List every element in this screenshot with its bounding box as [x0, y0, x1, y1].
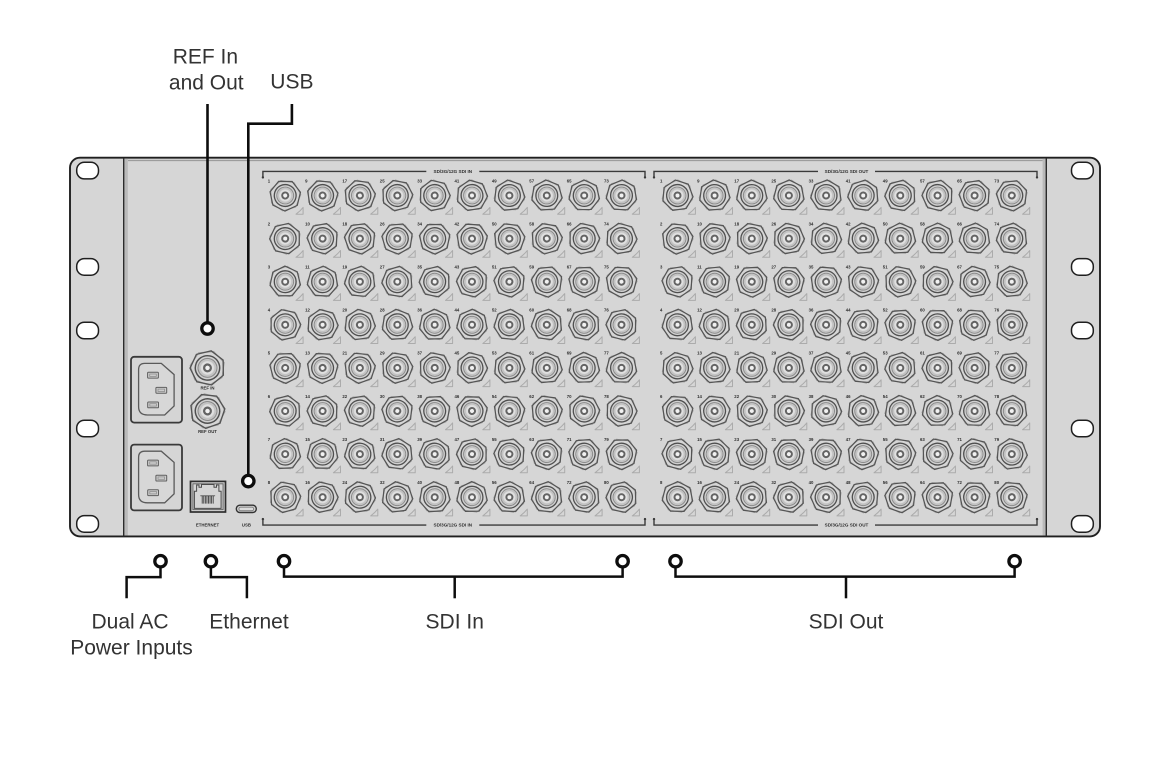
svg-text:50: 50 [883, 221, 888, 226]
svg-text:60: 60 [529, 308, 534, 313]
svg-text:77: 77 [604, 351, 609, 356]
svg-text:23: 23 [734, 437, 739, 442]
svg-text:38: 38 [417, 394, 422, 399]
svg-text:24: 24 [734, 480, 739, 485]
svg-text:15: 15 [697, 437, 702, 442]
svg-text:12: 12 [697, 308, 702, 313]
svg-text:18: 18 [342, 221, 347, 226]
svg-text:26: 26 [380, 221, 385, 226]
svg-text:66: 66 [957, 221, 962, 226]
svg-text:33: 33 [417, 178, 422, 183]
svg-text:28: 28 [771, 308, 776, 313]
svg-text:80: 80 [994, 480, 999, 485]
svg-text:Ethernet: Ethernet [209, 611, 289, 634]
svg-text:54: 54 [883, 394, 888, 399]
svg-text:38: 38 [809, 394, 814, 399]
svg-text:Dual AC: Dual AC [91, 611, 168, 634]
svg-text:54: 54 [492, 394, 497, 399]
svg-text:31: 31 [380, 437, 385, 442]
svg-text:45: 45 [846, 351, 851, 356]
svg-text:70: 70 [567, 394, 572, 399]
svg-text:49: 49 [883, 178, 888, 183]
svg-text:29: 29 [771, 351, 776, 356]
svg-text:12: 12 [305, 308, 310, 313]
svg-text:10: 10 [697, 221, 702, 226]
svg-text:16: 16 [305, 480, 310, 485]
svg-text:26: 26 [771, 221, 776, 226]
svg-text:27: 27 [380, 265, 385, 270]
svg-text:20: 20 [734, 308, 739, 313]
svg-text:76: 76 [994, 308, 999, 313]
svg-text:73: 73 [604, 178, 609, 183]
svg-text:47: 47 [455, 437, 460, 442]
svg-text:73: 73 [994, 178, 999, 183]
svg-text:67: 67 [957, 265, 962, 270]
svg-text:42: 42 [455, 221, 460, 226]
svg-text:20: 20 [342, 308, 347, 313]
svg-text:10: 10 [305, 221, 310, 226]
svg-text:USB: USB [270, 70, 313, 93]
svg-text:21: 21 [342, 351, 347, 356]
svg-text:48: 48 [846, 480, 851, 485]
svg-text:27: 27 [771, 265, 776, 270]
svg-text:30: 30 [380, 394, 385, 399]
svg-text:70: 70 [957, 394, 962, 399]
svg-text:68: 68 [567, 308, 572, 313]
svg-text:SD/3G/12G SDI OUT: SD/3G/12G SDI OUT [825, 169, 869, 174]
svg-text:REF OUT: REF OUT [198, 429, 217, 434]
svg-text:80: 80 [604, 480, 609, 485]
svg-text:32: 32 [771, 480, 776, 485]
svg-text:24: 24 [342, 480, 347, 485]
svg-text:49: 49 [492, 178, 497, 183]
svg-text:43: 43 [846, 265, 851, 270]
svg-text:44: 44 [846, 308, 851, 313]
svg-text:SDI In: SDI In [426, 611, 484, 634]
svg-text:72: 72 [957, 480, 962, 485]
svg-text:61: 61 [529, 351, 534, 356]
svg-text:36: 36 [417, 308, 422, 313]
svg-text:21: 21 [734, 351, 739, 356]
svg-text:51: 51 [883, 265, 888, 270]
svg-text:47: 47 [846, 437, 851, 442]
svg-text:59: 59 [920, 265, 925, 270]
svg-text:and Out: and Out [169, 72, 244, 95]
svg-text:53: 53 [883, 351, 888, 356]
svg-text:22: 22 [734, 394, 739, 399]
svg-text:17: 17 [734, 178, 739, 183]
svg-text:79: 79 [604, 437, 609, 442]
svg-text:68: 68 [957, 308, 962, 313]
svg-text:35: 35 [417, 265, 422, 270]
svg-text:56: 56 [492, 480, 497, 485]
svg-text:35: 35 [809, 265, 814, 270]
svg-text:36: 36 [809, 308, 814, 313]
svg-text:REF IN: REF IN [200, 385, 214, 390]
svg-text:42: 42 [846, 221, 851, 226]
svg-text:71: 71 [957, 437, 962, 442]
svg-text:40: 40 [809, 480, 814, 485]
svg-text:17: 17 [342, 178, 347, 183]
svg-text:15: 15 [305, 437, 310, 442]
svg-text:39: 39 [417, 437, 422, 442]
svg-text:SD/3G/12G SDI OUT: SD/3G/12G SDI OUT [825, 523, 869, 528]
svg-text:71: 71 [567, 437, 572, 442]
svg-text:56: 56 [883, 480, 888, 485]
svg-text:50: 50 [492, 221, 497, 226]
svg-text:64: 64 [920, 480, 925, 485]
svg-text:34: 34 [809, 221, 814, 226]
svg-text:11: 11 [305, 265, 310, 270]
svg-text:76: 76 [604, 308, 609, 313]
svg-text:22: 22 [342, 394, 347, 399]
svg-text:63: 63 [529, 437, 534, 442]
svg-text:61: 61 [920, 351, 925, 356]
svg-text:60: 60 [920, 308, 925, 313]
svg-text:53: 53 [492, 351, 497, 356]
svg-text:55: 55 [492, 437, 497, 442]
svg-text:58: 58 [529, 221, 534, 226]
svg-text:40: 40 [417, 480, 422, 485]
svg-text:78: 78 [994, 394, 999, 399]
svg-text:41: 41 [846, 178, 851, 183]
svg-text:74: 74 [994, 221, 999, 226]
svg-text:14: 14 [305, 394, 310, 399]
svg-text:67: 67 [567, 265, 572, 270]
svg-text:13: 13 [697, 351, 702, 356]
svg-text:18: 18 [734, 221, 739, 226]
svg-text:37: 37 [417, 351, 422, 356]
svg-text:74: 74 [604, 221, 609, 226]
svg-text:16: 16 [697, 480, 702, 485]
svg-text:43: 43 [455, 265, 460, 270]
svg-text:75: 75 [604, 265, 609, 270]
svg-text:48: 48 [455, 480, 460, 485]
svg-text:25: 25 [380, 178, 385, 183]
svg-text:51: 51 [492, 265, 497, 270]
svg-text:75: 75 [994, 265, 999, 270]
svg-text:34: 34 [417, 221, 422, 226]
svg-text:59: 59 [529, 265, 534, 270]
svg-text:45: 45 [455, 351, 460, 356]
svg-text:79: 79 [994, 437, 999, 442]
svg-text:SD/3G/12G SDI IN: SD/3G/12G SDI IN [434, 169, 473, 174]
svg-text:13: 13 [305, 351, 310, 356]
svg-text:69: 69 [957, 351, 962, 356]
svg-text:23: 23 [342, 437, 347, 442]
svg-text:14: 14 [697, 394, 702, 399]
svg-text:19: 19 [734, 265, 739, 270]
svg-text:31: 31 [771, 437, 776, 442]
svg-text:66: 66 [567, 221, 572, 226]
svg-text:28: 28 [380, 308, 385, 313]
svg-text:52: 52 [492, 308, 497, 313]
svg-text:39: 39 [809, 437, 814, 442]
svg-text:64: 64 [529, 480, 534, 485]
svg-text:65: 65 [567, 178, 572, 183]
svg-text:30: 30 [771, 394, 776, 399]
svg-text:77: 77 [994, 351, 999, 356]
svg-text:46: 46 [846, 394, 851, 399]
svg-text:25: 25 [771, 178, 776, 183]
svg-text:ETHERNET: ETHERNET [196, 522, 220, 527]
svg-text:37: 37 [809, 351, 814, 356]
svg-text:57: 57 [920, 178, 925, 183]
svg-text:29: 29 [380, 351, 385, 356]
svg-text:SDI Out: SDI Out [809, 611, 884, 634]
svg-text:46: 46 [455, 394, 460, 399]
svg-text:55: 55 [883, 437, 888, 442]
svg-text:62: 62 [529, 394, 534, 399]
svg-text:72: 72 [567, 480, 572, 485]
svg-text:Power Inputs: Power Inputs [70, 636, 193, 659]
svg-text:SD/3G/12G SDI IN: SD/3G/12G SDI IN [434, 523, 473, 528]
svg-text:32: 32 [380, 480, 385, 485]
svg-text:62: 62 [920, 394, 925, 399]
svg-text:65: 65 [957, 178, 962, 183]
svg-text:33: 33 [809, 178, 814, 183]
svg-text:78: 78 [604, 394, 609, 399]
svg-text:58: 58 [920, 221, 925, 226]
svg-text:11: 11 [697, 265, 702, 270]
svg-text:63: 63 [920, 437, 925, 442]
svg-text:19: 19 [342, 265, 347, 270]
svg-text:69: 69 [567, 351, 572, 356]
svg-text:57: 57 [529, 178, 534, 183]
svg-text:41: 41 [455, 178, 460, 183]
svg-text:52: 52 [883, 308, 888, 313]
svg-text:USB: USB [242, 523, 251, 528]
svg-text:REF In: REF In [173, 46, 238, 69]
svg-text:44: 44 [455, 308, 460, 313]
